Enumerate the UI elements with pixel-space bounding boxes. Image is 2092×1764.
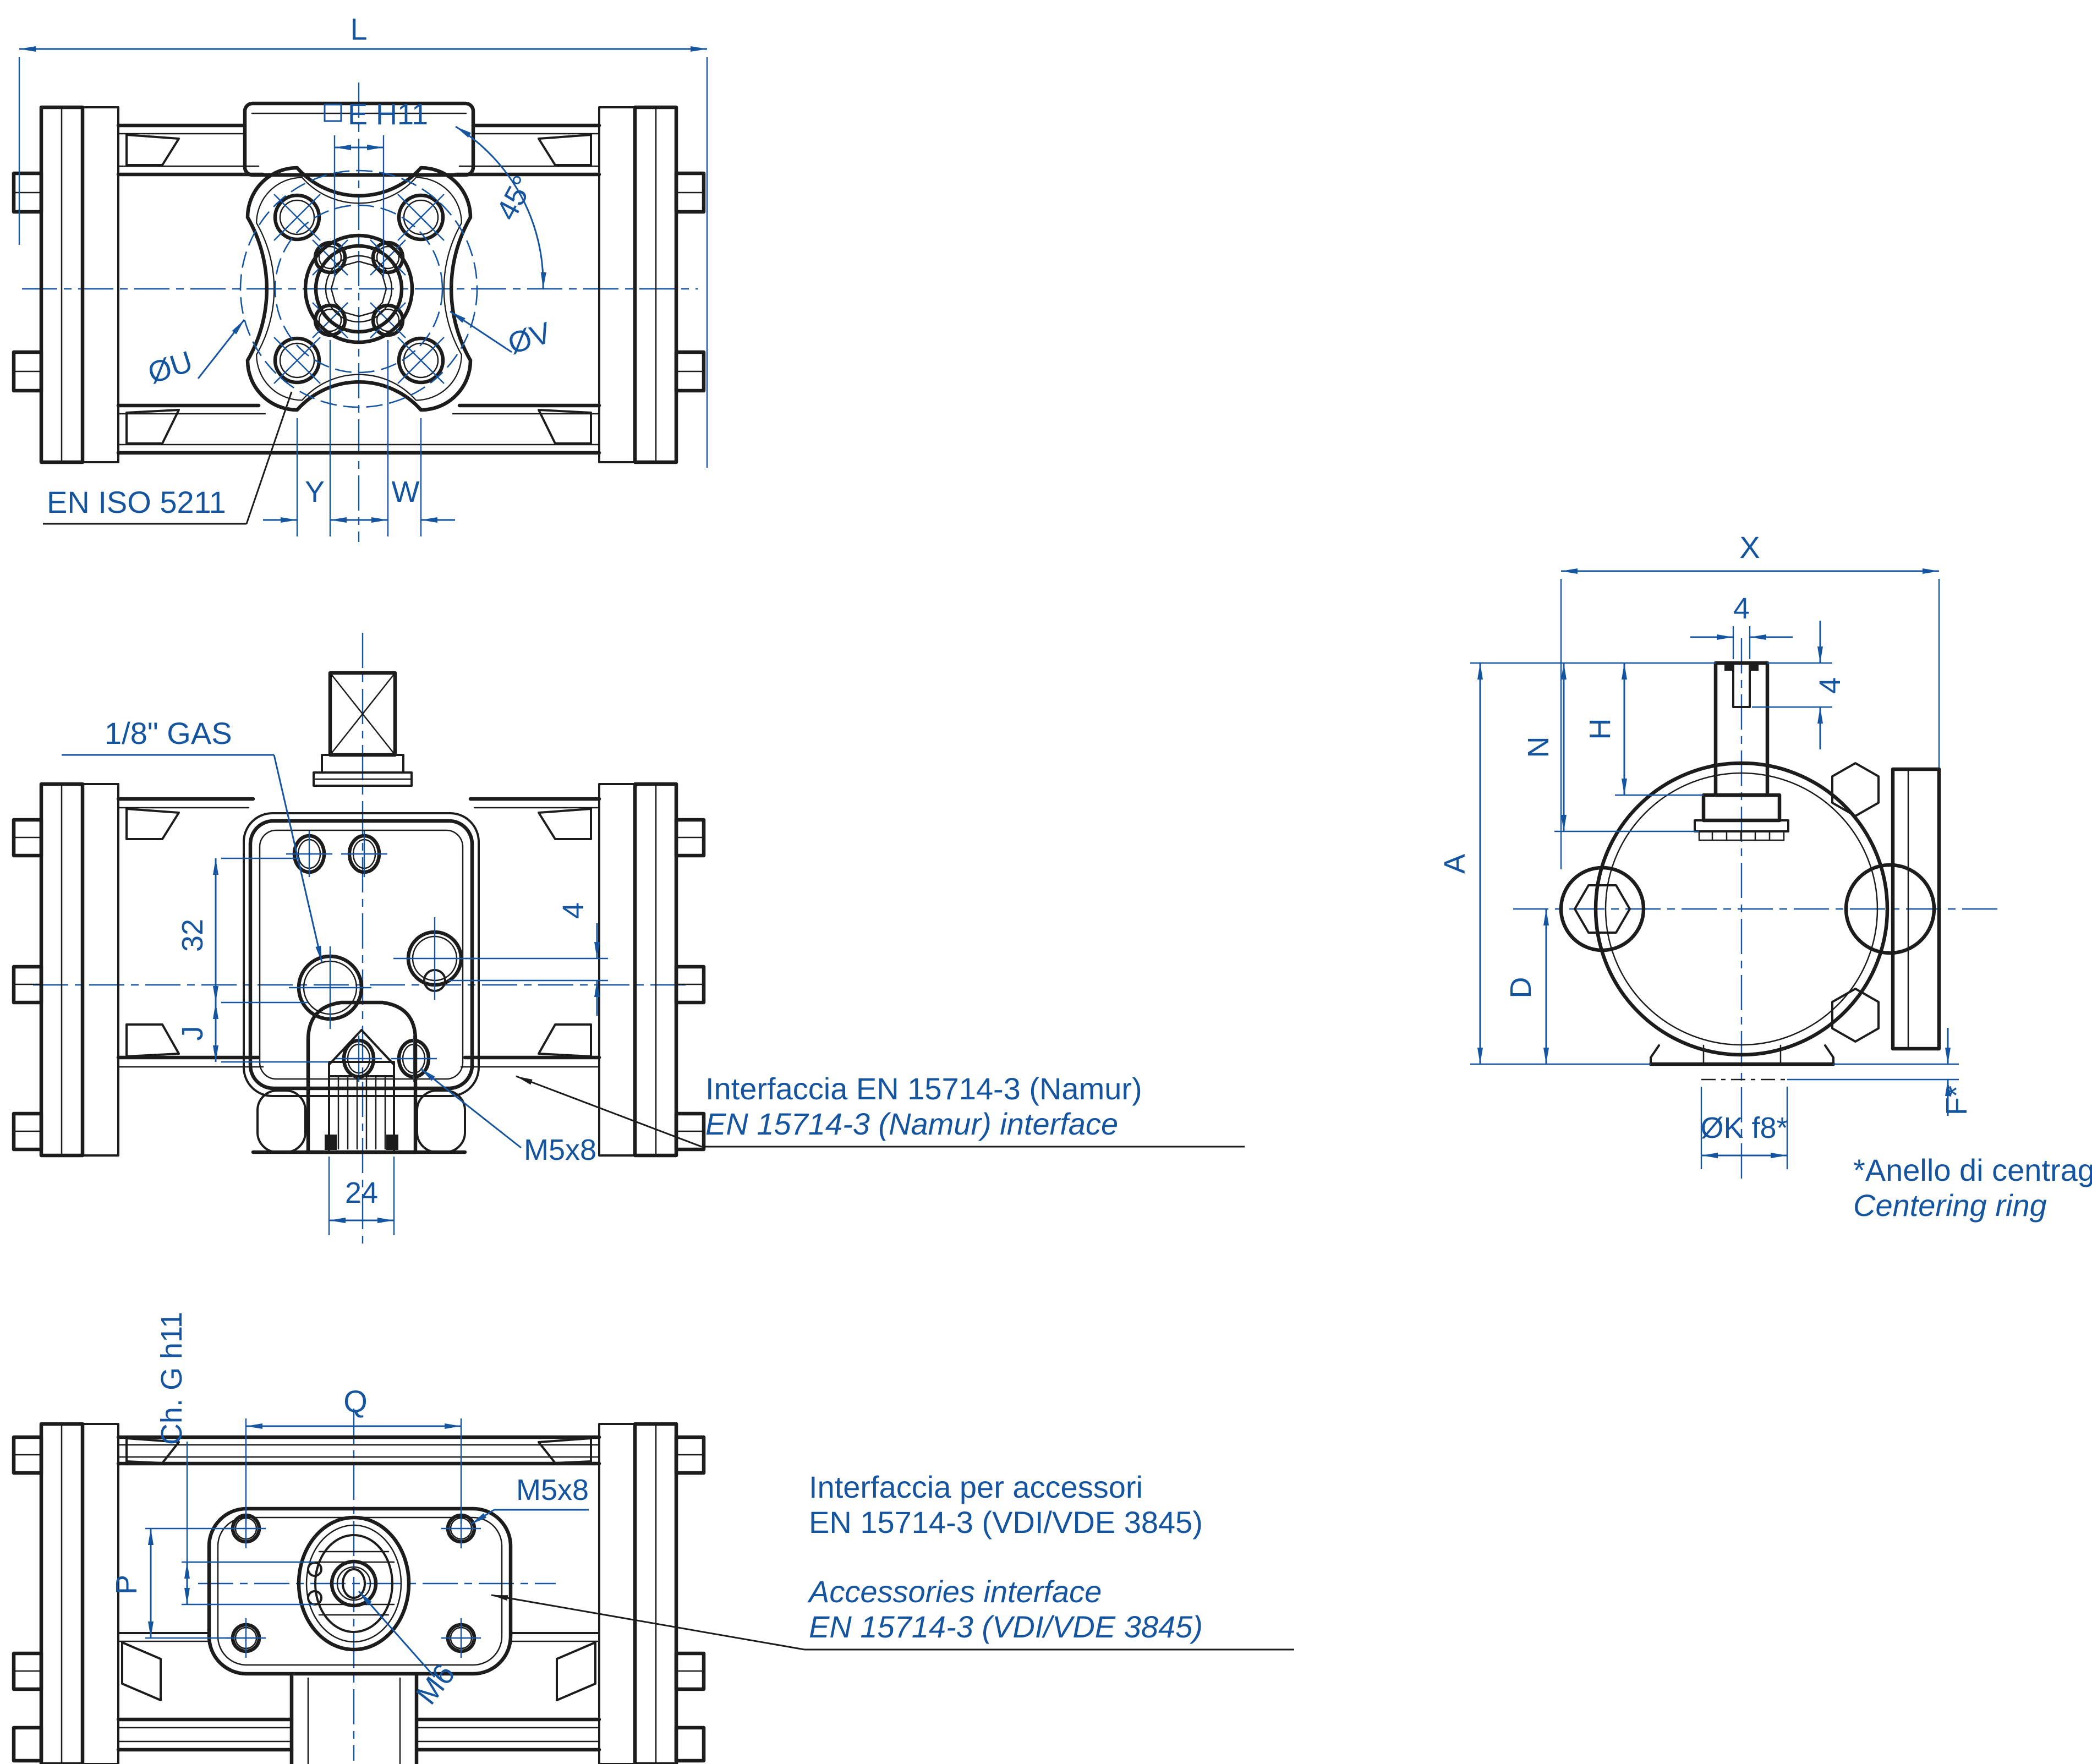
bottom-accessories-note: Interfaccia per accessori EN 15714-3 (VD… — [491, 1470, 1294, 1650]
dim-label-dU: ØU — [144, 345, 197, 390]
front-left-end-cap — [14, 107, 118, 462]
front-right-end-cap — [599, 107, 704, 462]
dim-label-45: 45° — [490, 170, 540, 225]
dim-label-Q: Q — [343, 1384, 368, 1418]
label-gas: 1/8" GAS — [105, 716, 232, 750]
top-namur-note: Interfaccia EN 15714-3 (Namur) EN 15714-… — [516, 1071, 1245, 1147]
bottom-m5x8-leader: M5x8 — [471, 1473, 589, 1524]
top-namur-plate — [244, 813, 479, 1096]
dim-label-J: J — [176, 1026, 209, 1041]
side-view: X 4 4 H N — [1438, 530, 2092, 1223]
dim-label-D: D — [1504, 977, 1537, 999]
side-dim-K: ØK f8* — [1700, 1087, 1788, 1169]
label-m5x8-bottom: M5x8 — [516, 1473, 589, 1506]
dim-label-slot-width: 4 — [1733, 592, 1750, 625]
label-accessori-it-1: Interfaccia per accessori — [809, 1470, 1143, 1504]
dim-label-E-H11: E H11 — [348, 98, 428, 131]
label-namur-en: EN 15714-3 (Namur) interface — [705, 1106, 1118, 1141]
bottom-vdi-plate — [209, 1509, 511, 1764]
side-dim-A-D: A D — [1438, 663, 1651, 1064]
dim-label-slot-depth: 4 — [1814, 677, 1847, 694]
dim-label-X: X — [1739, 530, 1760, 565]
dim-label-F: F* — [1940, 1086, 1973, 1115]
bottom-left-end-cap — [14, 1424, 118, 1764]
side-dim-F: F* — [1787, 1028, 1973, 1116]
dim-label-K: ØK f8* — [1700, 1111, 1788, 1144]
top-right-end-cap — [599, 784, 704, 1155]
dim-label-P: P — [110, 1575, 143, 1595]
label-centering-ring: Centering ring — [1853, 1188, 2047, 1223]
bottom-m6-leader: M6 — [359, 1591, 462, 1711]
dim-label-Y: Y — [305, 475, 325, 508]
top-dim-24: 24 — [329, 1157, 394, 1235]
front-dim-diameters: ØU ØV — [144, 311, 555, 390]
dim-label-A: A — [1438, 854, 1471, 874]
side-centering-ring-note: *Anello di centraggio Centering ring — [1853, 1153, 2092, 1223]
label-accessori-en-1: Accessories interface — [807, 1574, 1102, 1609]
dim-label-dV: ØV — [504, 316, 555, 360]
label-m5x8-top: M5x8 — [524, 1133, 596, 1166]
dim-label-L: L — [350, 12, 367, 46]
bottom-dim-ChG: Ch. G h11 — [155, 1312, 315, 1604]
label-anello: *Anello di centraggio — [1853, 1153, 2092, 1187]
dim-label-H: H — [1584, 719, 1617, 740]
bottom-right-end-cap — [599, 1424, 704, 1764]
top-air-plug-section — [253, 1002, 465, 1152]
side-body — [1561, 763, 1939, 1080]
dim-label-24: 24 — [345, 1176, 378, 1209]
top-hole-center-marks — [286, 831, 476, 1082]
dim-label-W: W — [392, 475, 420, 508]
label-namur-it: Interfaccia EN 15714-3 (Namur) — [705, 1071, 1142, 1106]
actuator-dimensional-drawing: L E H11 45° ØU ØV — [0, 0, 2092, 1764]
label-accessori-en-2: EN 15714-3 (VDI/VDE 3845) — [809, 1609, 1203, 1644]
dim-label-4: 4 — [557, 902, 590, 919]
side-dim-H-N: H N — [1522, 663, 1716, 831]
top-view: 1/8" GAS 32 J 4 M5x8 — [14, 633, 1245, 1249]
top-dim-32-J: 32 J — [176, 858, 329, 1062]
label-en-iso-5211: EN ISO 5211 — [47, 485, 226, 519]
dim-label-N: N — [1522, 737, 1555, 758]
dim-label-ChG: Ch. G h11 — [155, 1312, 188, 1445]
technical-drawing-page: { "colors": { "annotation": "#15549E", "… — [0, 0, 2092, 1764]
front-dim-L: L — [19, 12, 707, 468]
dim-label-32: 32 — [176, 919, 209, 952]
label-accessori-it-2: EN 15714-3 (VDI/VDE 3845) — [809, 1505, 1203, 1540]
top-left-end-cap — [14, 784, 118, 1155]
front-view: L E H11 45° ØU ØV — [14, 12, 707, 542]
bottom-view: Q Ch. G h11 P M5x8 M6 — [14, 1312, 1294, 1764]
